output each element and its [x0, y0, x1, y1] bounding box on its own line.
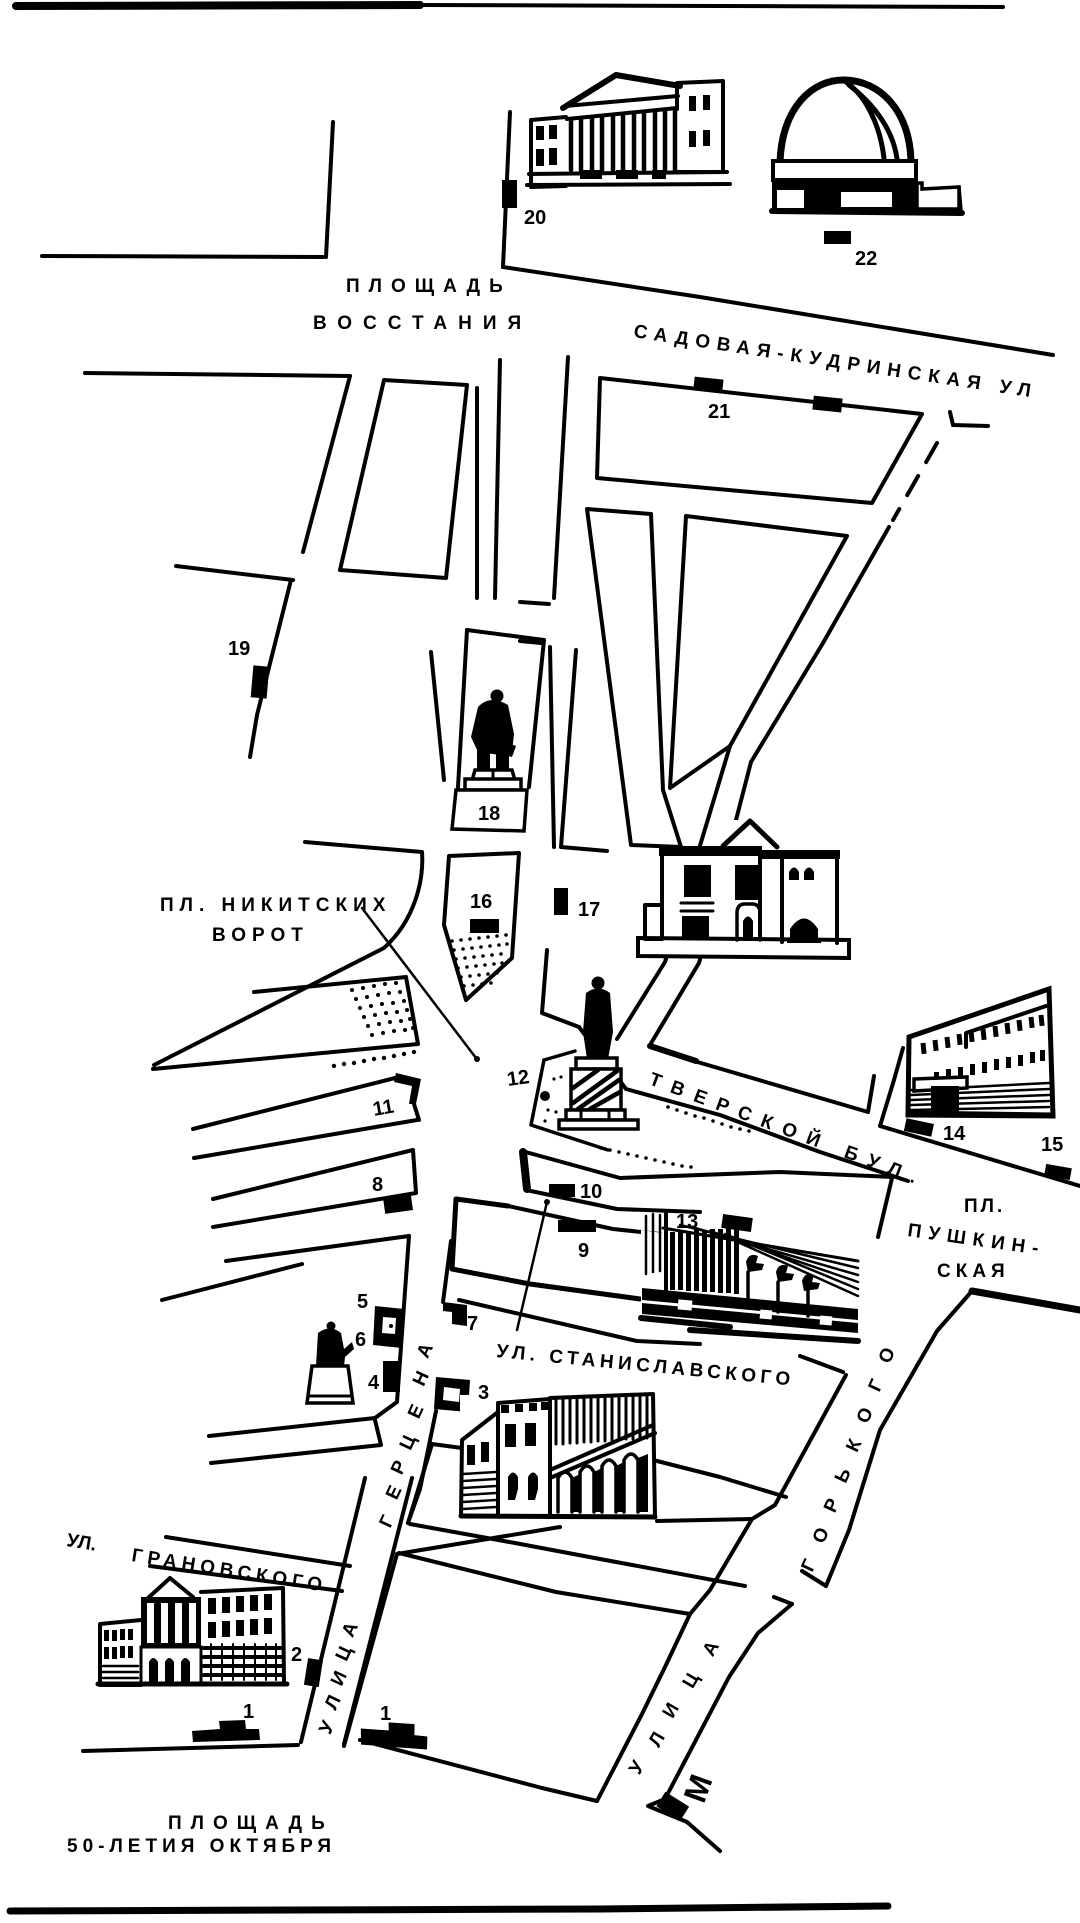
svg-text:18: 18 [478, 803, 500, 825]
svg-text:ВОССТАНИЯ: ВОССТАНИЯ [313, 313, 532, 334]
svg-text:СКАЯ: СКАЯ [937, 1261, 1010, 1282]
svg-text:15: 15 [1041, 1134, 1063, 1156]
svg-text:19: 19 [228, 638, 250, 660]
svg-text:ВОРОТ: ВОРОТ [212, 925, 309, 946]
svg-text:7: 7 [467, 1313, 478, 1335]
svg-text:2: 2 [291, 1644, 302, 1666]
svg-text:ПЛ. НИКИТСКИХ: ПЛ. НИКИТСКИХ [160, 895, 391, 916]
svg-text:3: 3 [478, 1382, 489, 1404]
svg-text:11: 11 [371, 1096, 396, 1121]
svg-text:5: 5 [357, 1291, 368, 1313]
svg-text:4: 4 [368, 1372, 380, 1394]
svg-text:21: 21 [708, 401, 730, 423]
svg-text:9: 9 [578, 1240, 589, 1262]
svg-text:1: 1 [380, 1703, 391, 1725]
svg-text:1: 1 [243, 1701, 254, 1723]
svg-text:6: 6 [355, 1329, 366, 1351]
svg-text:12: 12 [506, 1066, 531, 1091]
svg-text:17: 17 [578, 899, 600, 921]
svg-text:20: 20 [524, 207, 546, 229]
svg-text:50-ЛЕТИЯ ОКТЯБРЯ: 50-ЛЕТИЯ ОКТЯБРЯ [67, 1836, 336, 1857]
svg-text:22: 22 [855, 248, 877, 270]
svg-text:ПЛОЩАДЬ: ПЛОЩАДЬ [346, 276, 512, 297]
svg-text:14: 14 [943, 1123, 966, 1145]
svg-text:16: 16 [470, 891, 492, 913]
svg-text:8: 8 [372, 1174, 383, 1196]
svg-text:ПЛОЩАДЬ: ПЛОЩАДЬ [168, 1813, 334, 1834]
svg-text:ПЛ.: ПЛ. [964, 1196, 1005, 1217]
svg-text:10: 10 [580, 1181, 602, 1203]
